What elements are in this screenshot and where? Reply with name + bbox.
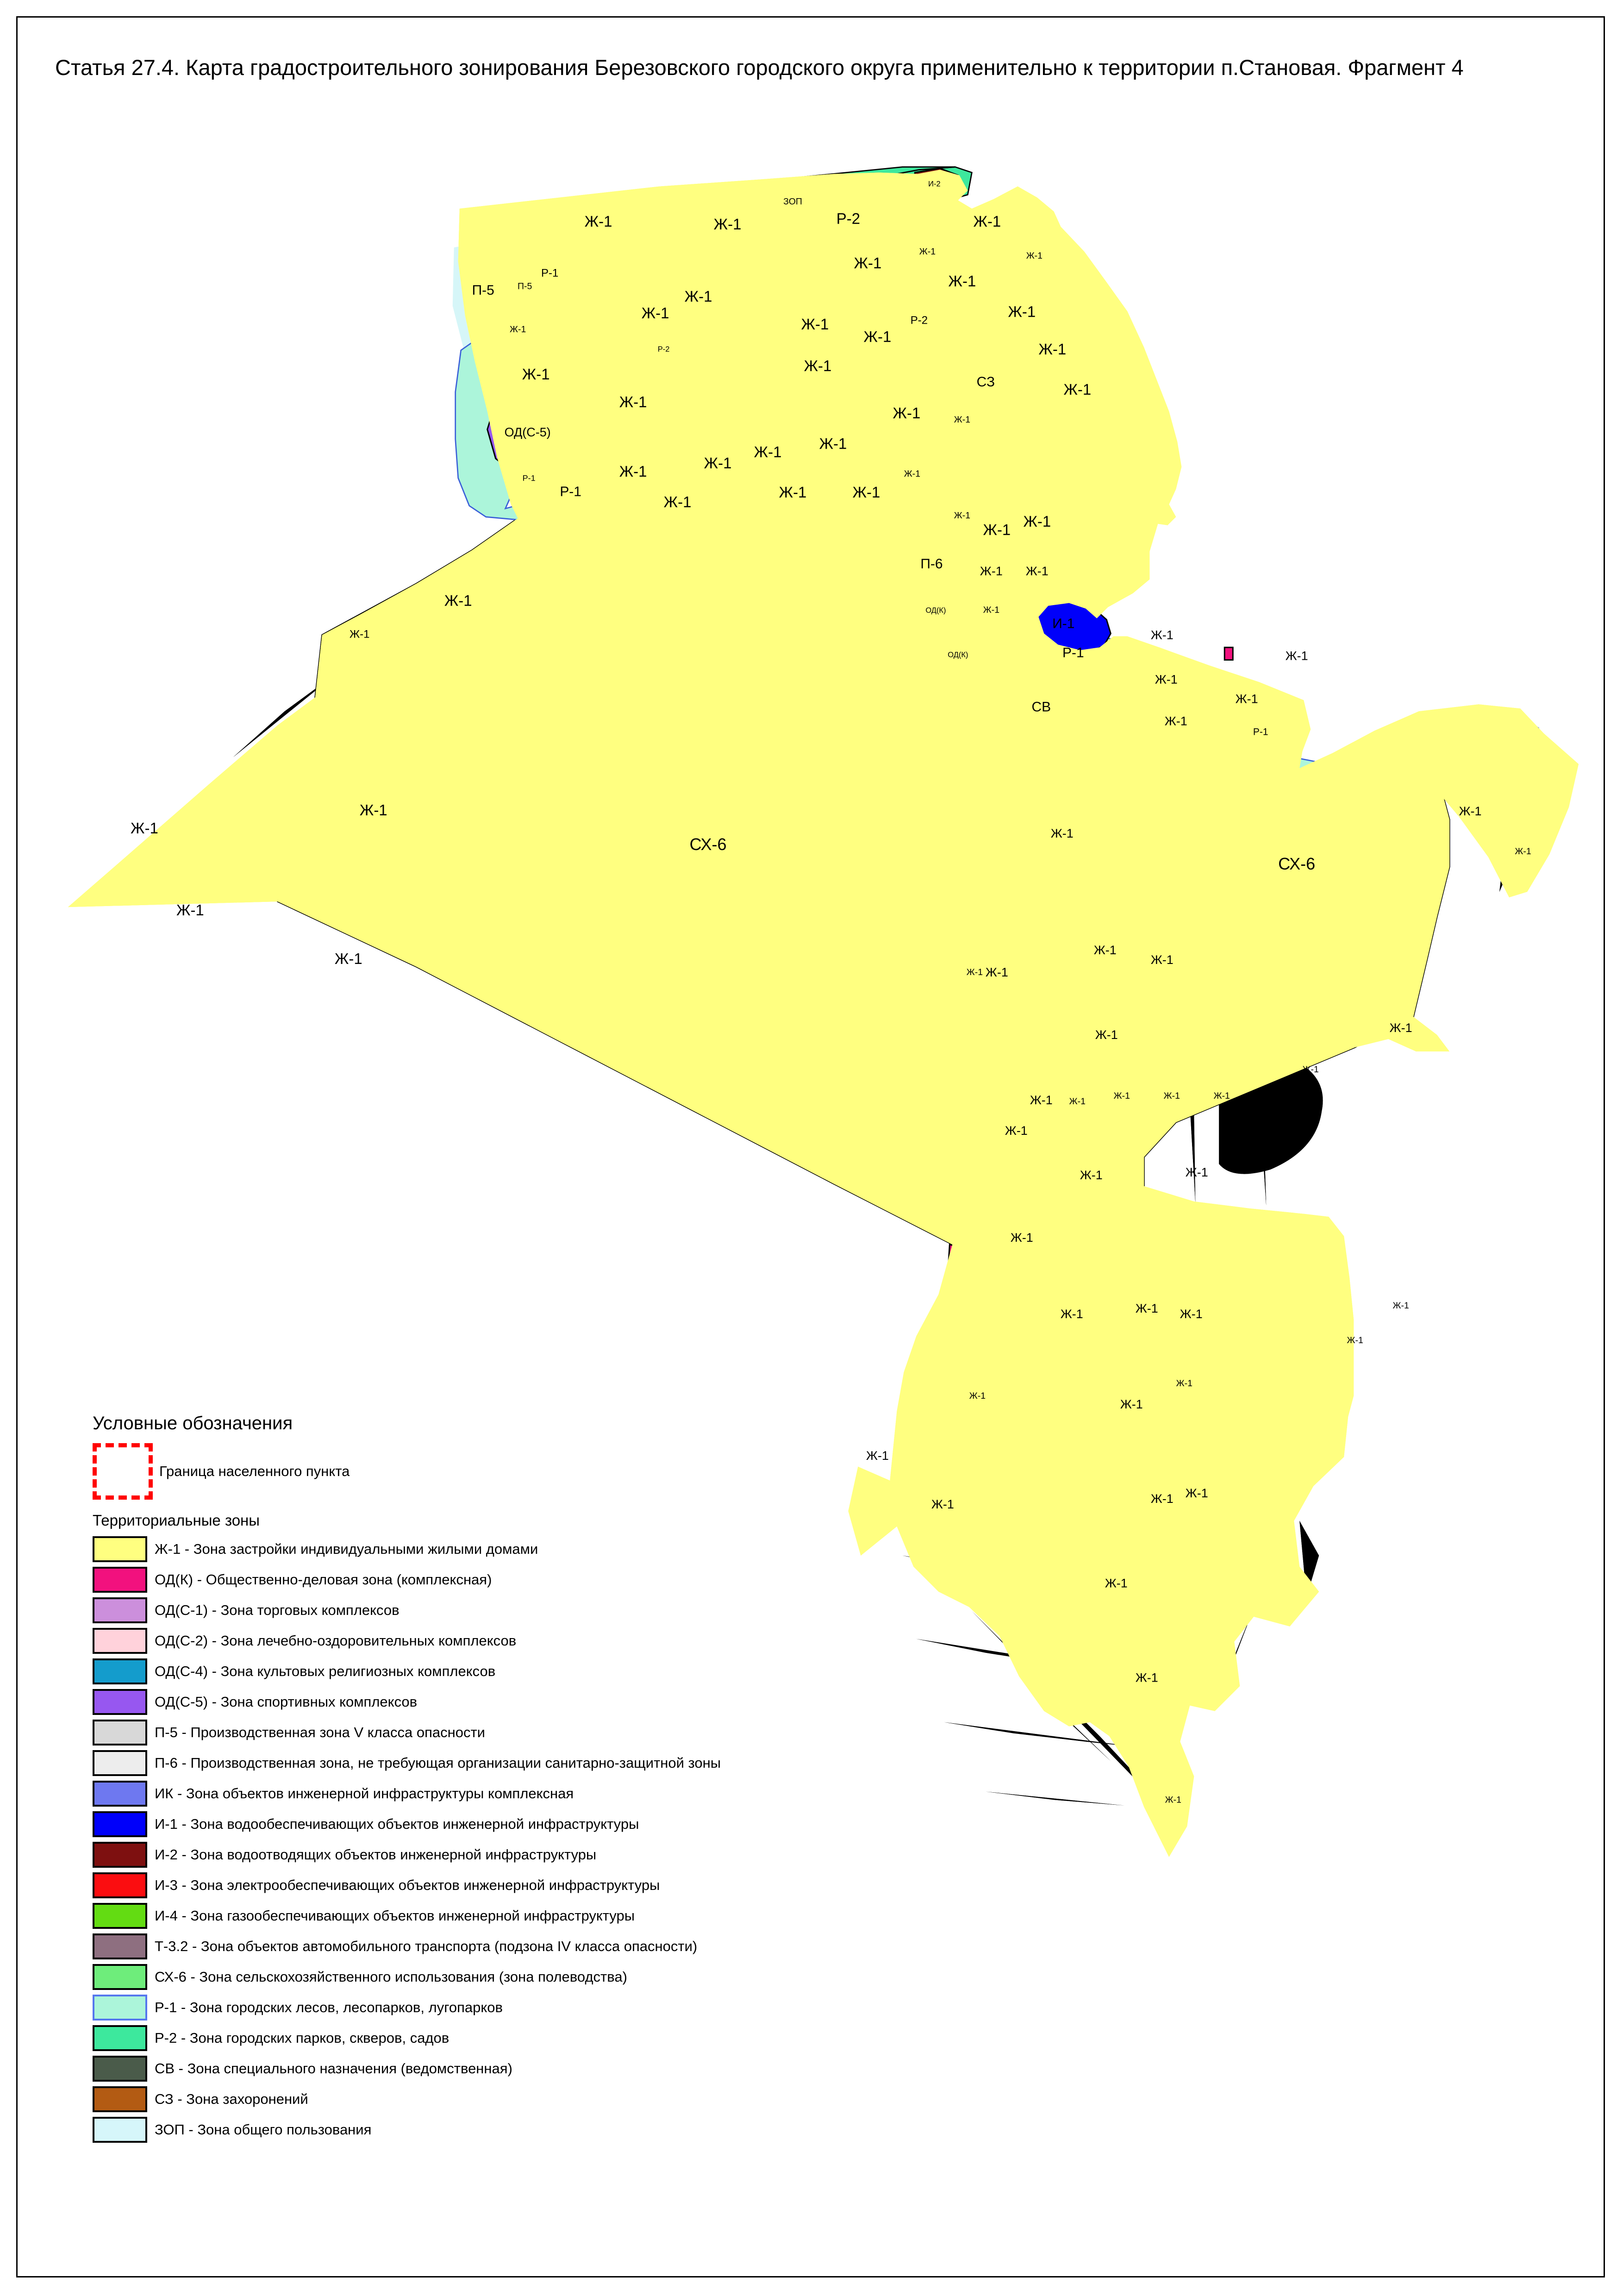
legend-item: ОД(С-1) - Зона торговых комплексов xyxy=(93,1597,972,1624)
legend-item-label: ОД(К) - Общественно-деловая зона (компле… xyxy=(155,1571,492,1588)
legend-item: СХ-6 - Зона сельскохозяйственного исполь… xyxy=(93,1964,972,1990)
legend-swatch xyxy=(93,1903,147,1929)
map-zone-label: Ж-1 xyxy=(685,288,712,305)
map-zone-label: Ж-1 xyxy=(522,365,550,382)
legend-boundary-item: Граница населенного пункта xyxy=(93,1443,972,1500)
map-zone-label: Ж-1 xyxy=(954,414,970,425)
map-zone-label: Р-1 xyxy=(523,473,536,482)
legend-item: СЗ - Зона захоронений xyxy=(93,2086,972,2113)
map-zone-label: Ж-1 xyxy=(1051,826,1074,840)
legend: Условные обозначения Граница населенного… xyxy=(93,1413,972,2147)
map-zone-label: Ж-1 xyxy=(1151,953,1174,967)
map-zone-label: Ж-1 xyxy=(1265,1083,1287,1097)
map-zone-label: Ж-1 xyxy=(1026,251,1042,261)
map-zone-label: Ж-1 xyxy=(969,1391,986,1401)
map-zone-label: Р-1 xyxy=(1062,645,1084,660)
map-zone-label: Ж-1 xyxy=(131,820,158,837)
map-zone-label: Ж-1 xyxy=(1080,1168,1103,1182)
legend-swatch xyxy=(93,2025,147,2051)
legend-swatch xyxy=(93,1811,147,1837)
legend-item: ОД(С-5) - Зона спортивных комплексов xyxy=(93,1689,972,1715)
map-zone-label: Ж-1 xyxy=(619,463,647,480)
legend-item-label: Ж-1 - Зона застройки индивидуальными жил… xyxy=(155,1541,538,1558)
legend-item-label: П-6 - Производственная зона, не требующа… xyxy=(155,1755,721,1771)
legend-header: Условные обозначения xyxy=(93,1413,972,1434)
legend-item: П-6 - Производственная зона, не требующа… xyxy=(93,1750,972,1777)
legend-swatch xyxy=(93,1781,147,1807)
legend-item-label: ОД(С-4) - Зона культовых религиозных ком… xyxy=(155,1663,495,1680)
map-zone-label: Ж-1 xyxy=(444,592,472,609)
legend-item-label: СХ-6 - Зона сельскохозяйственного исполь… xyxy=(155,1969,627,1985)
map-zone-label: Ж-1 xyxy=(350,628,369,640)
map-zone-label: Ж-1 xyxy=(893,404,921,421)
map-zone-label: Ж-1 xyxy=(1136,1671,1158,1685)
map-zone-label: Ж-1 xyxy=(176,901,204,919)
legend-swatch xyxy=(93,1933,147,1959)
map-zone-label: Ж-1 xyxy=(1164,1091,1180,1101)
legend-item: Т-3.2 - Зона объектов автомобильного тра… xyxy=(93,1933,972,1960)
map-zone-label: ЗОП xyxy=(783,197,802,207)
boundary-label: Граница населенного пункта xyxy=(159,1463,350,1480)
legend-item: И-3 - Зона электрообеспечивающих объекто… xyxy=(93,1872,972,1899)
map-zone-label: Ж-1 xyxy=(801,316,829,333)
legend-swatch xyxy=(93,1658,147,1684)
legend-item-label: Р-1 - Зона городских лесов, лесопарков, … xyxy=(155,1999,503,2016)
legend-swatch xyxy=(93,1536,147,1562)
map-zone-label: Ж-1 xyxy=(1392,1301,1409,1311)
legend-swatch xyxy=(93,1689,147,1715)
map-zone-label: Ж-1 xyxy=(1176,1378,1192,1389)
map-zone-label: Ж-1 xyxy=(904,469,920,479)
map-zone-label: Ж-1 xyxy=(949,273,976,290)
map-zone-label: Ж-1 xyxy=(619,393,647,410)
legend-swatch xyxy=(93,2056,147,2082)
map-zone-label: Ж-1 xyxy=(1069,1096,1086,1107)
map-zone-label: П-6 xyxy=(920,556,943,571)
map-zone-label: Ж-1 xyxy=(360,801,387,819)
map-zone-label: П-5 xyxy=(518,282,532,292)
map-zone-label: Ж-1 xyxy=(1136,1301,1158,1315)
map-zone-label: Ж-1 xyxy=(983,521,1011,538)
map-zone-label: Ж-1 xyxy=(585,213,612,230)
legend-item-label: И-4 - Зона газообеспечивающих объектов и… xyxy=(155,1908,635,1924)
map-zone-label: Ж-1 xyxy=(1155,672,1178,686)
legend-item: Р-2 - Зона городских парков, скверов, са… xyxy=(93,2025,972,2052)
map-zone-label: ОД(К) xyxy=(925,606,946,614)
map-zone-label: Ж-1 xyxy=(1515,846,1531,857)
legend-swatch xyxy=(93,1964,147,1990)
map-zone-label: Ж-1 xyxy=(1114,1091,1130,1101)
map-zone-label: Ж-1 xyxy=(986,965,1008,979)
map-zone-label: Ж-1 xyxy=(1459,804,1482,818)
legend-item: СВ - Зона специального назначения (ведом… xyxy=(93,2055,972,2082)
legend-swatch xyxy=(93,1597,147,1623)
map-zone-label: Ж-1 xyxy=(967,967,983,977)
legend-rows: Ж-1 - Зона застройки индивидуальными жил… xyxy=(93,1536,972,2143)
legend-item: Р-1 - Зона городских лесов, лесопарков, … xyxy=(93,1994,972,2021)
map-zone-label: Ж-1 xyxy=(1347,1335,1363,1345)
map-zone-label: Ж-1 xyxy=(1008,303,1036,320)
map-zone-label: Ж-1 xyxy=(819,435,847,452)
boundary-symbol xyxy=(93,1443,153,1500)
legend-swatch xyxy=(93,2117,147,2143)
map-zone-label: Ж-1 xyxy=(664,493,692,510)
map-zone-label: СВ xyxy=(1032,699,1051,714)
legend-item: ЗОП - Зона общего пользования xyxy=(93,2116,972,2143)
map-zone-label: Ж-1 xyxy=(1120,1397,1143,1411)
map-zone-label: Ж-1 xyxy=(510,325,526,335)
map-zone-label: Ж-1 xyxy=(919,247,936,257)
legend-item: ИК - Зона объектов инженерной инфраструк… xyxy=(93,1780,972,1807)
legend-item-label: Р-2 - Зона городских парков, скверов, са… xyxy=(155,2030,449,2046)
map-zone-label: ОД(С-5) xyxy=(505,425,551,439)
map-zone-label: И-1 xyxy=(1052,616,1074,631)
map-zone-label: Ж-1 xyxy=(1390,1021,1412,1035)
legend-swatch xyxy=(93,1567,147,1593)
legend-swatch xyxy=(93,1720,147,1745)
legend-swatch xyxy=(93,1628,147,1654)
map-zone-label: Ж-1 xyxy=(1105,1577,1128,1590)
map-zone-label: Ж-1 xyxy=(754,443,782,460)
legend-zones-header: Территориальные зоны xyxy=(93,1512,972,1529)
map-zone-label: СХ-6 xyxy=(690,835,727,854)
map-zone-label: Ж-1 xyxy=(1186,1486,1208,1500)
map-zone-label: Ж-1 xyxy=(954,510,970,520)
map-zone-label: Ж-1 xyxy=(973,213,1001,230)
map-zone-label: П-5 xyxy=(472,283,494,298)
map-zone-label: Ж-1 xyxy=(1165,714,1187,728)
map-zone-label: Ж-1 xyxy=(983,605,999,615)
map-zone-label: Ж-1 xyxy=(1063,381,1091,398)
legend-item-label: СЗ - Зона захоронений xyxy=(155,2091,308,2108)
legend-swatch xyxy=(93,1842,147,1868)
map-zone-label: Ж-1 xyxy=(779,483,807,500)
map-zone-label: Р-2 xyxy=(658,345,670,353)
map-zone-label: Ж-1 xyxy=(1165,1795,1181,1805)
map-zone-label: Ж-1 xyxy=(1151,628,1174,642)
legend-item-label: П-5 - Производственная зона V класса опа… xyxy=(155,1724,485,1741)
map-zone-label: Ж-1 xyxy=(854,255,882,272)
legend-item: И-1 - Зона водообеспечивающих объектов и… xyxy=(93,1811,972,1838)
map-zone-label: Ж-1 xyxy=(1151,1492,1174,1506)
map-zone-label: И-2 xyxy=(928,180,941,188)
legend-swatch xyxy=(93,1995,147,2021)
legend-item-label: ИК - Зона объектов инженерной инфраструк… xyxy=(155,1785,574,1802)
map-zone-label: СЗ xyxy=(977,374,995,389)
legend-item: И-2 - Зона водоотводящих объектов инжене… xyxy=(93,1841,972,1868)
map-zone-label: Р-2 xyxy=(911,314,928,327)
legend-swatch xyxy=(93,2086,147,2112)
map-zone-label: Ж-1 xyxy=(804,357,832,374)
legend-item-label: И-1 - Зона водообеспечивающих объектов и… xyxy=(155,1816,639,1833)
legend-item-label: ЗОП - Зона общего пользования xyxy=(155,2121,371,2138)
map-zone-label: Ж-1 xyxy=(1186,1165,1208,1179)
legend-item-label: СВ - Зона специального назначения (ведом… xyxy=(155,2060,512,2077)
legend-item-label: ОД(С-1) - Зона торговых комплексов xyxy=(155,1602,400,1619)
legend-item: Ж-1 - Зона застройки индивидуальными жил… xyxy=(93,1536,972,1563)
legend-item: ОД(С-4) - Зона культовых религиозных ком… xyxy=(93,1658,972,1685)
map-zone-label: СХ-6 xyxy=(1278,854,1315,873)
map-zone-label: Р-1 xyxy=(1253,726,1268,737)
map-zone-label: Ж-1 xyxy=(1095,1028,1118,1042)
map-zone-label: Ж-1 xyxy=(1061,1307,1083,1321)
map-zone-label: Ж-1 xyxy=(1011,1231,1033,1245)
legend-item-label: И-3 - Зона электрообеспечивающих объекто… xyxy=(155,1877,660,1894)
legend-item-label: ОД(С-2) - Зона лечебно-оздоровительных к… xyxy=(155,1633,516,1649)
map-zone-label: Ж-1 xyxy=(1214,1091,1230,1101)
legend-swatch xyxy=(93,1750,147,1776)
map-zone-label: Ж-1 xyxy=(704,454,732,471)
map-zone-label: Ж-1 xyxy=(1286,649,1308,663)
map-zone-label: Ж-1 xyxy=(1030,1093,1053,1107)
map-zone-label: Ж-1 xyxy=(1023,513,1051,530)
legend-item-label: Т-3.2 - Зона объектов автомобильного тра… xyxy=(155,1938,697,1955)
legend-item: И-4 - Зона газообеспечивающих объектов и… xyxy=(93,1902,972,1929)
map-zone-label: Ж-1 xyxy=(1094,943,1117,957)
legend-item-label: ОД(С-5) - Зона спортивных комплексов xyxy=(155,1694,417,1710)
legend-item-label: И-2 - Зона водоотводящих объектов инжене… xyxy=(155,1846,596,1863)
map-zone-label: ОД(К) xyxy=(948,651,968,659)
map-zone-label: Ж-1 xyxy=(1180,1307,1203,1321)
page: { "title": "Статья 27.4. Карта градостро… xyxy=(0,0,1623,2296)
map-zone-label: Р-2 xyxy=(836,210,860,227)
map-zone-label: Р-1 xyxy=(560,484,581,499)
map-zone-label: Ж-1 xyxy=(1026,564,1049,578)
map-zone-label: Ж-1 xyxy=(980,564,1003,578)
map-zone-label: Ж-1 xyxy=(853,483,880,500)
map-zone-label: Ж-1 xyxy=(1005,1124,1028,1138)
map-zone-label: Ж-1 xyxy=(714,216,742,233)
map-zone-label: Ж-1 xyxy=(1038,340,1066,357)
map-zone-label: Ж-1 xyxy=(864,328,892,345)
zone-odk-tiny-2 xyxy=(1224,647,1233,660)
legend-item: ОД(С-2) - Зона лечебно-оздоровительных к… xyxy=(93,1627,972,1654)
legend-item: ОД(К) - Общественно-деловая зона (компле… xyxy=(93,1566,972,1593)
map-zone-label: Ж-1 xyxy=(642,305,669,322)
legend-item: П-5 - Производственная зона V класса опа… xyxy=(93,1719,972,1746)
map-zone-label: Р-1 xyxy=(541,267,558,280)
map-zone-label: Ж-1 xyxy=(335,950,362,967)
map-zone-label: Ж-1 xyxy=(1303,1064,1319,1075)
legend-swatch xyxy=(93,1872,147,1898)
map-zone-label: Ж-1 xyxy=(1236,692,1258,706)
